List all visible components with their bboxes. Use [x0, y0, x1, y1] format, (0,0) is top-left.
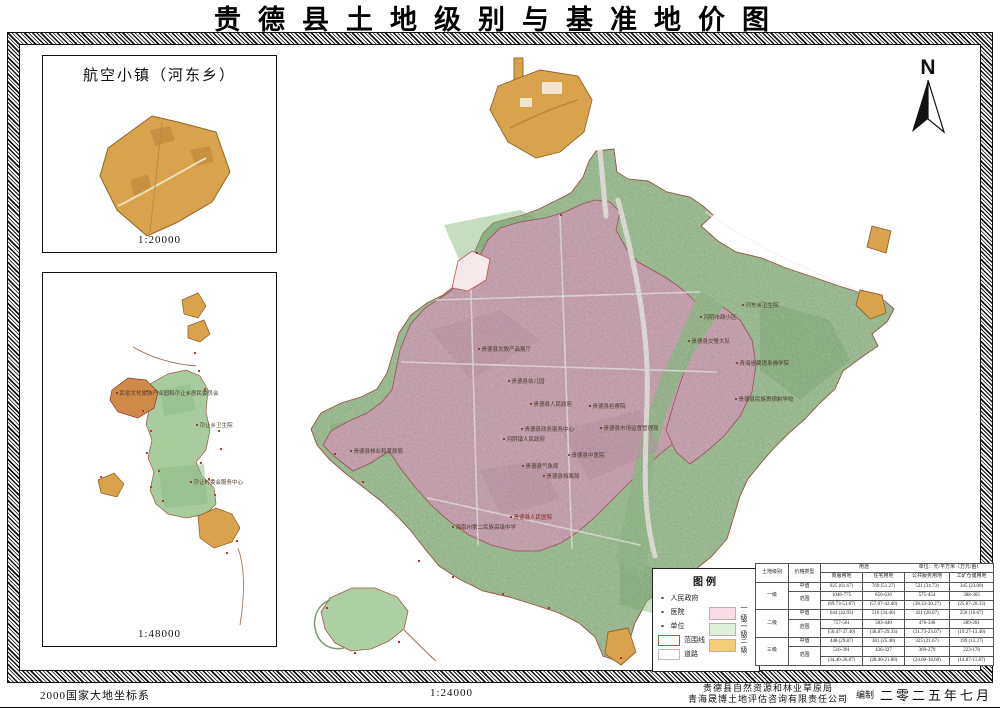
col-header-commercial: 商服用地: [821, 573, 863, 582]
mid-value-cell: 521 (34.73): [905, 582, 950, 591]
grade3-swatch: [709, 639, 736, 652]
use-header-label: 用途: [821, 565, 907, 571]
range-value-cell: 757-561: [821, 619, 863, 628]
table-row: 三级中值448 (29.87)381 (25.40)325 (21.67)199…: [756, 638, 994, 647]
range-line-swatch: [658, 635, 680, 646]
col-header-level: 土地级别: [756, 564, 789, 583]
legend-grade-3: 三级: [709, 637, 754, 653]
range-wan-value-cell: (50.47-37.40): [821, 628, 863, 637]
col-header-price-type: 价格类型: [789, 564, 821, 583]
range-wan-value-cell: (38.33-30.27): [905, 601, 950, 610]
legend-item-hospital: 医院: [658, 605, 709, 619]
land-price-table: 土地级别 价格类型 用途 单位：元/平方米（万元/亩） 商服用地 住宅用地 公共…: [755, 563, 993, 666]
mid-value-cell: 250 (16.67): [950, 610, 994, 619]
point-marker-icon: [661, 625, 664, 628]
grade1-swatch: [709, 607, 736, 620]
range-wan-value-cell: (25.87-20.33): [950, 601, 994, 610]
mid-value-cell: 421 (28.07): [905, 610, 950, 619]
range-wan-value-cell: (34.40-26.07): [821, 656, 863, 665]
point-marker-icon: [661, 597, 664, 600]
table-row: 一级中值925 (61.67)769 (51.27)521 (34.73)345…: [756, 582, 994, 591]
mid-value-cell: 925 (61.67): [821, 582, 863, 591]
range-wan-value-cell: (24.60-18.60): [905, 656, 950, 665]
page-title: 贵德县土地级别与基准地价图: [0, 0, 1000, 37]
map-sheet: 贵德县土地级别与基准地价图 航空小镇（河东乡） 1:20000 1:48000: [0, 0, 1000, 708]
mid-value-cell: 644 (42.93): [821, 610, 863, 619]
price-type-cell: 范围: [789, 647, 821, 666]
inset-township: 1:48000: [42, 272, 277, 647]
coordinate-system-label: 2000国家大地坐标系: [40, 687, 150, 703]
range-value-cell: 516-391: [821, 647, 863, 656]
legend-item-unit: 单位: [658, 619, 709, 633]
publisher-orgs: 贵德县自然资源和林业草原局 青海晟博土地评估咨询有限责任公司: [688, 683, 848, 706]
legend-title: 图例: [658, 573, 754, 588]
map-scale-label: 1:24000: [430, 687, 473, 699]
mid-value-cell: 448 (29.87): [821, 638, 863, 647]
legend-label: 道路: [684, 649, 698, 659]
range-value-cell: 476-346: [905, 619, 950, 628]
price-type-cell: 范围: [789, 591, 821, 610]
table-row: 范围1046-775856-636575-454388-305: [756, 591, 994, 600]
legend-label: 人民政府: [671, 593, 699, 603]
level-cell: 三级: [756, 638, 789, 666]
range-wan-value-cell: (14.87-11.87): [950, 656, 994, 665]
point-marker-icon: [661, 611, 664, 614]
table-row: 二级中值644 (42.93)516 (34.40)421 (28.07)250…: [756, 610, 994, 619]
range-value-cell: 426-327: [863, 647, 905, 656]
publish-date: 二零二五年七月: [880, 685, 992, 704]
legend-label: 三级: [740, 635, 754, 655]
range-wan-value-cell: (38.87-29.33): [863, 628, 905, 637]
range-value-cell: 1046-775: [821, 591, 863, 600]
level-cell: 二级: [756, 610, 789, 638]
legend-item-road: 道路: [658, 647, 709, 661]
legend-label: 单位: [671, 621, 685, 631]
inset-airport-title: 航空小镇（河东乡）: [43, 64, 276, 85]
mid-value-cell: 769 (51.27): [863, 582, 905, 591]
col-header-industrial: 工矿仓储用地: [950, 573, 994, 582]
legend-label: 范围线: [684, 635, 705, 645]
col-header-use: 用途 单位：元/平方米（万元/亩）: [821, 564, 994, 573]
grade2-swatch: [709, 623, 736, 636]
price-type-cell: 中值: [789, 638, 821, 647]
range-wan-value-cell: (57.07-42.40): [863, 601, 905, 610]
mid-value-cell: 381 (25.40): [863, 638, 905, 647]
credit-label: 编制: [856, 688, 874, 701]
inset-township-scale: 1:48000: [43, 628, 276, 640]
mid-value-cell: 199 (13.27): [950, 638, 994, 647]
level-cell: 一级: [756, 582, 789, 610]
mid-value-cell: 516 (34.40): [863, 610, 905, 619]
road-swatch: [658, 649, 680, 660]
legend-item-government: 人民政府: [658, 591, 709, 605]
range-value-cell: 856-636: [863, 591, 905, 600]
range-value-cell: 388-305: [950, 591, 994, 600]
col-header-public: 公共服务用地: [905, 573, 950, 582]
mid-value-cell: 345 (23.00): [950, 582, 994, 591]
price-type-cell: 中值: [789, 610, 821, 619]
range-value-cell: 369-279: [905, 647, 950, 656]
legend-label: 医院: [671, 607, 685, 617]
range-wan-value-cell: (28.40-21.80): [863, 656, 905, 665]
price-type-cell: 中值: [789, 582, 821, 591]
inset-airport-town: 航空小镇（河东乡） 1:20000: [42, 55, 277, 253]
org-line2: 青海晟博土地评估咨询有限责任公司: [688, 694, 848, 705]
org-line1: 贵德县自然资源和林业草原局: [688, 683, 848, 694]
col-header-residential: 住宅用地: [863, 573, 905, 582]
inset-airport-scale: 1:20000: [43, 234, 276, 246]
price-type-cell: 范围: [789, 619, 821, 638]
footer-bar: 2000国家大地坐标系 1:24000 贵德县自然资源和林业草原局 青海晟博土地…: [0, 682, 1000, 707]
legend-item-range-line: 范围线: [658, 633, 709, 647]
range-wan-value-cell: (19.27-13.40): [950, 628, 994, 637]
unit-note: 单位：元/平方米（万元/亩）: [907, 565, 993, 571]
range-wan-value-cell: (69.73-51.67): [821, 601, 863, 610]
legend: 图例 人民政府 医院 单位 范围线: [652, 568, 760, 672]
range-value-cell: 223-178: [950, 647, 994, 656]
range-wan-value-cell: (31.73-23.07): [905, 628, 950, 637]
range-value-cell: 583-440: [863, 619, 905, 628]
range-value-cell: 575-454: [905, 591, 950, 600]
range-value-cell: 289-201: [950, 619, 994, 628]
table-row: 范围757-561583-440476-346289-201: [756, 619, 994, 628]
mid-value-cell: 325 (21.67): [905, 638, 950, 647]
table-row: 范围516-391426-327369-279223-178: [756, 647, 994, 656]
